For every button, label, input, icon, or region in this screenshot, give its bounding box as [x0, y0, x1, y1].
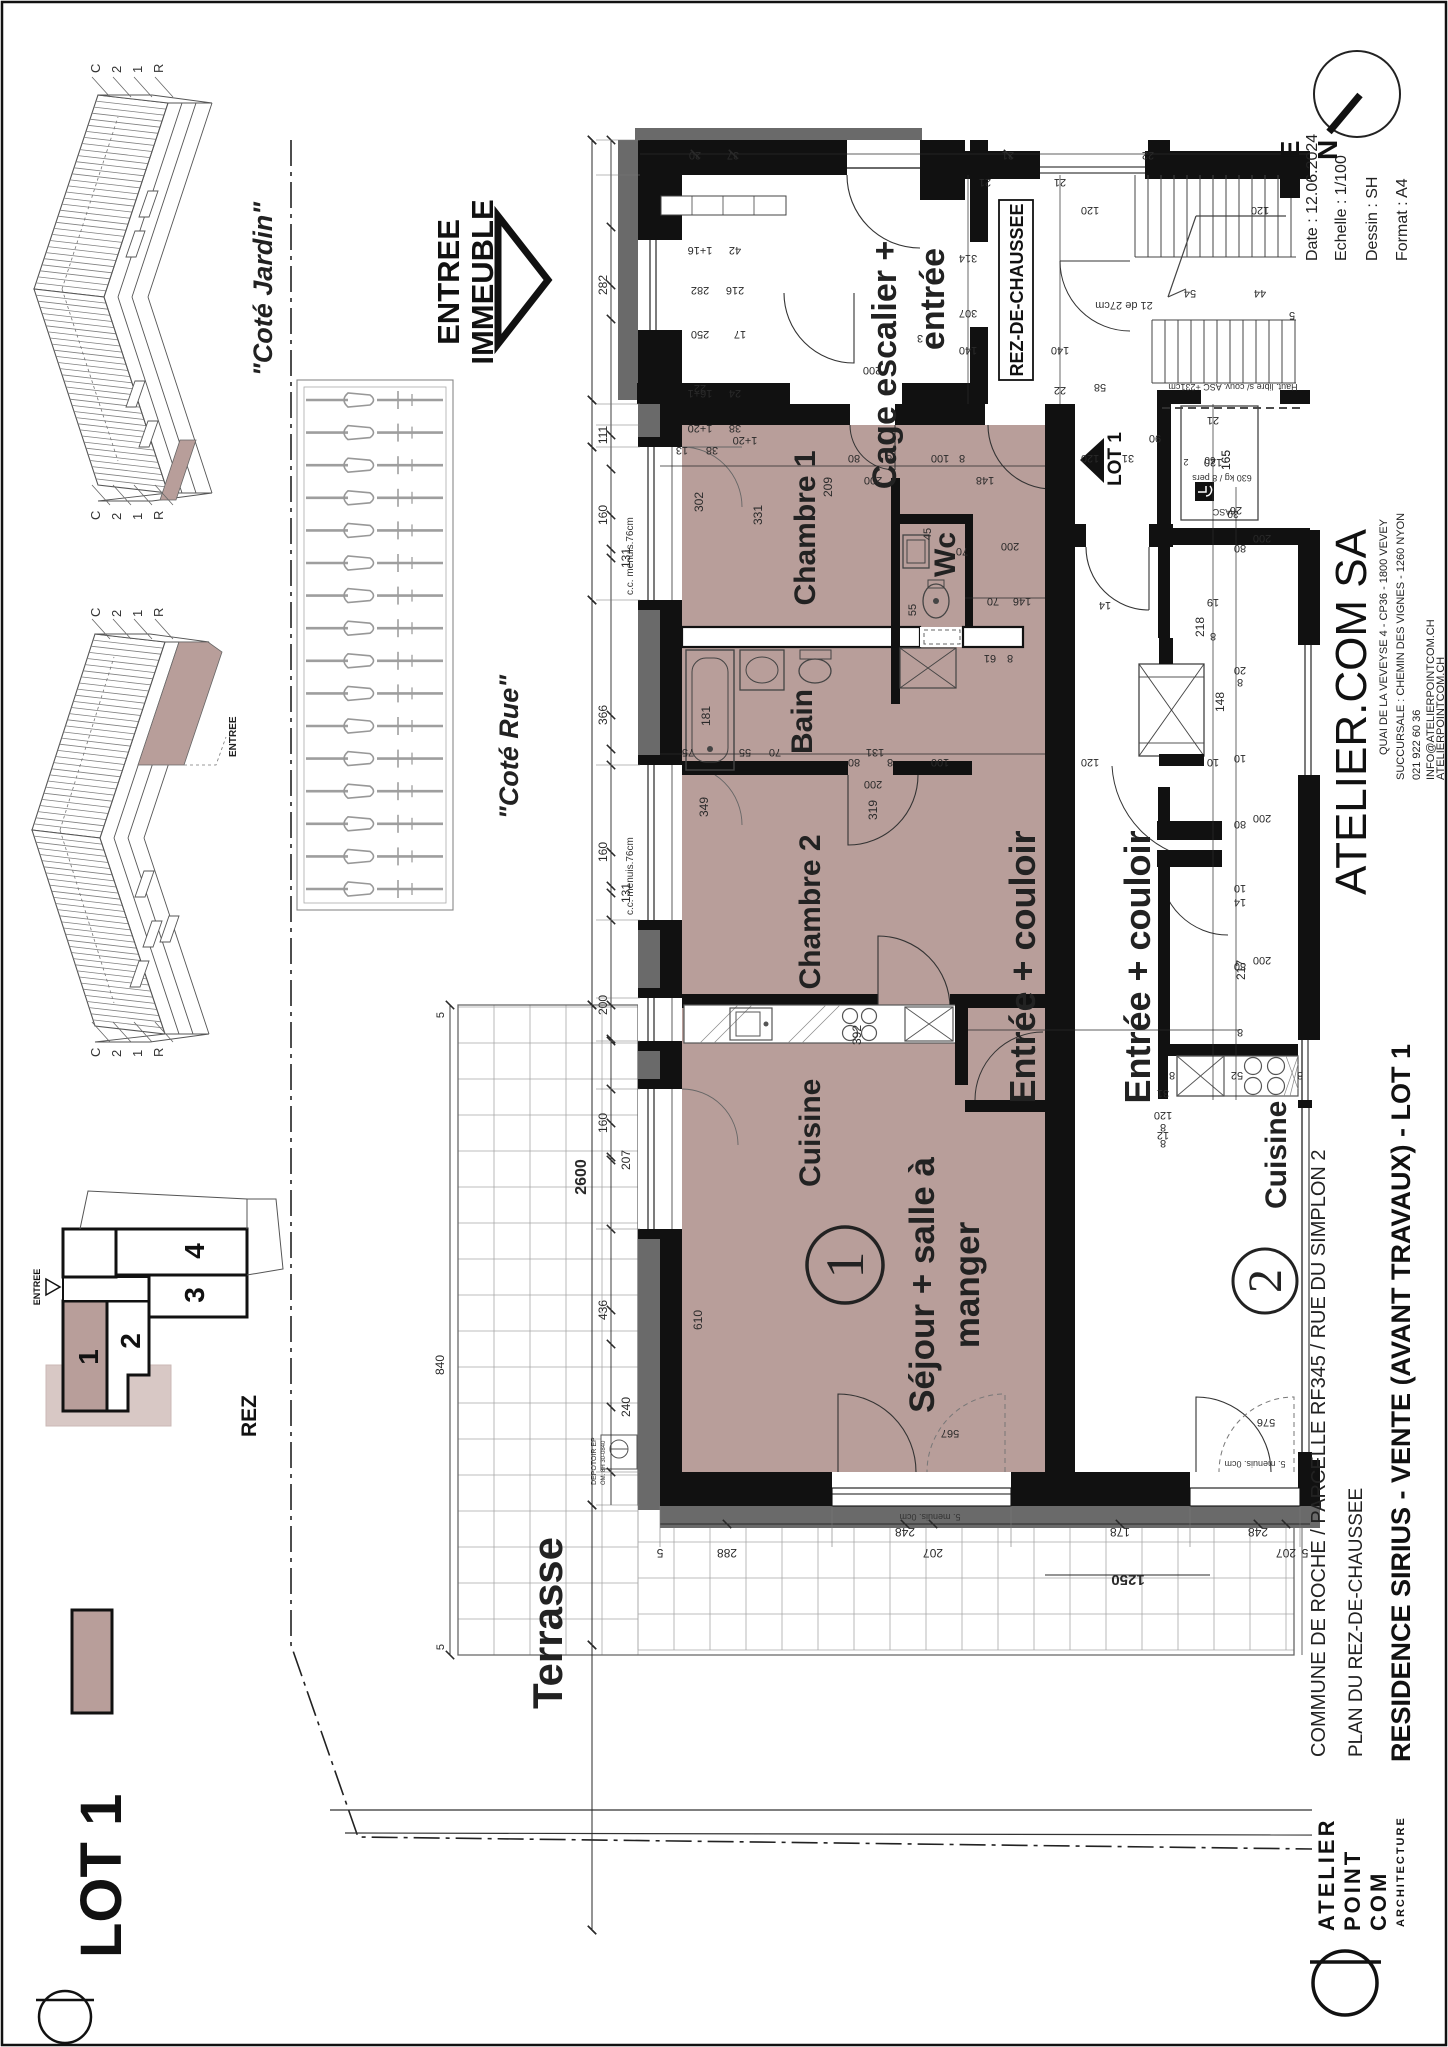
svg-text:2: 2	[109, 66, 124, 73]
svg-text:8: 8	[1297, 1069, 1303, 1081]
svg-text:148: 148	[1213, 692, 1227, 712]
svg-text:45: 45	[922, 528, 934, 540]
svg-text:8: 8	[1237, 1026, 1243, 1038]
svg-text:"Coté Rue": "Coté Rue"	[494, 674, 524, 819]
svg-text:100: 100	[931, 756, 949, 768]
svg-text:120: 120	[1251, 204, 1269, 216]
svg-text:Entrée + couloir: Entrée + couloir	[1117, 830, 1158, 1103]
svg-text:Cuisine: Cuisine	[1260, 1101, 1293, 1209]
svg-text:31: 31	[1122, 452, 1134, 464]
svg-text:21: 21	[1054, 176, 1066, 188]
svg-text:17: 17	[734, 328, 746, 340]
svg-text:140: 140	[959, 344, 977, 356]
svg-text:160: 160	[596, 1113, 610, 1133]
svg-text:R: R	[151, 511, 166, 520]
svg-text:90: 90	[1149, 432, 1161, 444]
svg-text:COM: COM	[1366, 1871, 1391, 1931]
svg-text:REZ-DE-CHAUSSEE: REZ-DE-CHAUSSEE	[1007, 203, 1027, 376]
svg-text:1+16: 1+16	[688, 244, 713, 256]
svg-text:14: 14	[1099, 599, 1111, 611]
svg-text:5: 5	[1289, 309, 1295, 321]
svg-text:200: 200	[864, 474, 882, 486]
svg-text:75: 75	[682, 746, 694, 758]
svg-text:209: 209	[821, 477, 835, 497]
svg-text:120: 120	[1154, 1109, 1172, 1121]
svg-text:567: 567	[941, 1427, 959, 1439]
svg-text:200: 200	[1253, 812, 1271, 824]
svg-text:1: 1	[73, 1349, 104, 1365]
svg-text:248: 248	[895, 1525, 915, 1539]
svg-text:2600: 2600	[573, 1159, 590, 1195]
svg-text:1+20: 1+20	[688, 422, 713, 434]
svg-text:200: 200	[863, 364, 881, 376]
svg-text:N: N	[1312, 140, 1343, 160]
svg-text:55: 55	[739, 746, 751, 758]
svg-text:131: 131	[619, 548, 633, 568]
svg-text:8: 8	[1160, 1121, 1166, 1133]
svg-text:248: 248	[1248, 1525, 1268, 1539]
svg-text:331: 331	[751, 505, 765, 525]
svg-text:2: 2	[1183, 457, 1188, 467]
svg-text:307: 307	[959, 307, 977, 319]
svg-text:QUAI DE LA VEVEYSE 4 - CP36 -: QUAI DE LA VEVEYSE 4 - CP36 - 1800 VEVEY	[1378, 518, 1390, 755]
svg-text:Chambre 1: Chambre 1	[789, 450, 822, 605]
svg-text:8: 8	[1237, 676, 1243, 688]
svg-text:R: R	[151, 64, 166, 73]
svg-text:5: 5	[435, 1012, 447, 1018]
svg-text:3: 3	[917, 332, 923, 344]
svg-text:8: 8	[1169, 1069, 1175, 1081]
svg-text:Cuisine: Cuisine	[794, 1079, 827, 1187]
svg-text:Echelle : 1/100: Echelle : 1/100	[1333, 155, 1350, 261]
svg-text:80: 80	[848, 452, 860, 464]
svg-text:4: 4	[179, 1243, 210, 1259]
svg-text:21: 21	[979, 176, 991, 188]
svg-text:70: 70	[987, 595, 999, 607]
svg-text:200: 200	[1001, 540, 1019, 552]
svg-text:C: C	[88, 1048, 103, 1057]
svg-text:38: 38	[729, 422, 741, 434]
svg-text:OM. 8H 30-0840: OM. 8H 30-0840	[601, 1440, 607, 1485]
svg-text:1+20: 1+20	[733, 434, 758, 446]
svg-text:111: 111	[596, 426, 610, 445]
svg-text:24: 24	[729, 387, 741, 399]
svg-text:16+1: 16+1	[688, 387, 713, 399]
svg-text:314: 314	[959, 252, 977, 264]
svg-text:POINT: POINT	[1340, 1849, 1365, 1931]
svg-text:140: 140	[1051, 344, 1069, 356]
svg-text:120: 120	[1081, 204, 1099, 216]
svg-text:Terrasse: Terrasse	[524, 1537, 571, 1709]
svg-text:8: 8	[959, 452, 965, 464]
svg-text:576: 576	[1257, 1416, 1275, 1428]
svg-text:120: 120	[1081, 756, 1099, 768]
svg-text:ATELIERPOINTCOM.CH: ATELIERPOINTCOM.CH	[1435, 657, 1447, 780]
svg-text:21 de 27cm: 21 de 27cm	[1095, 299, 1152, 311]
svg-text:Format : A4: Format : A4	[1394, 178, 1411, 261]
svg-text:216: 216	[726, 284, 744, 296]
svg-text:R: R	[151, 1048, 166, 1057]
svg-text:288: 288	[717, 1546, 737, 1560]
svg-text:55: 55	[907, 604, 919, 616]
svg-text:70: 70	[956, 545, 968, 557]
svg-text:ENTREE: ENTREE	[431, 219, 466, 345]
svg-text:392: 392	[850, 1025, 864, 1045]
svg-text:1: 1	[130, 1050, 145, 1057]
svg-text:C: C	[88, 511, 103, 520]
svg-text:C: C	[88, 608, 103, 617]
svg-text:54: 54	[1184, 287, 1196, 299]
svg-text:SUCCURSALE : CHEMIN DES VIGNES: SUCCURSALE : CHEMIN DES VIGNES - 1260 NY…	[1395, 513, 1407, 780]
svg-text:1: 1	[130, 610, 145, 617]
svg-text:8: 8	[887, 756, 893, 768]
svg-text:Haut. libre s/ couv. ASC +231c: Haut. libre s/ couv. ASC +231cm	[1168, 382, 1297, 392]
svg-text:80: 80	[848, 756, 860, 768]
svg-text:610: 610	[691, 1310, 705, 1330]
svg-text:22: 22	[1054, 384, 1066, 396]
svg-text:31: 31	[1157, 1087, 1169, 1099]
svg-text:160: 160	[596, 505, 610, 525]
svg-text:131: 131	[866, 746, 884, 758]
svg-text:61: 61	[984, 652, 996, 664]
svg-text:120: 120	[1081, 452, 1099, 464]
svg-text:1250: 1250	[1111, 1571, 1144, 1588]
svg-text:COMMUNE DE ROCHE / PARCELLE RF: COMMUNE DE ROCHE / PARCELLE RF345 / RUE …	[1308, 1149, 1330, 1757]
svg-text:366: 366	[596, 705, 610, 725]
svg-text:38: 38	[706, 444, 718, 456]
svg-text:52: 52	[1231, 1069, 1243, 1081]
svg-text:100: 100	[931, 452, 949, 464]
svg-text:3: 3	[179, 1287, 210, 1303]
svg-text:PLAN DU REZ-DE-CHAUSSEE: PLAN DU REZ-DE-CHAUSSEE	[1346, 1488, 1367, 1757]
svg-text:ATELIER.COM SA: ATELIER.COM SA	[1327, 528, 1376, 895]
svg-text:1: 1	[815, 1252, 875, 1279]
svg-text:5. menuis. 0cm: 5. menuis. 0cm	[1224, 1459, 1285, 1469]
svg-text:RESIDENCE SIRIUS - VENTE (AVAN: RESIDENCE SIRIUS - VENTE (AVANT TRAVAUX)…	[1386, 1044, 1416, 1762]
svg-text:ENTREE: ENTREE	[228, 716, 239, 757]
svg-text:436: 436	[596, 1300, 610, 1320]
svg-text:250: 250	[691, 328, 709, 340]
svg-text:2: 2	[109, 610, 124, 617]
svg-text:Séjour + salle à: Séjour + salle à	[903, 1157, 942, 1413]
svg-text:2: 2	[115, 1333, 146, 1349]
svg-text:ARCHITECTURE: ARCHITECTURE	[1395, 1816, 1407, 1927]
svg-text:5: 5	[656, 1546, 663, 1560]
svg-text:178: 178	[1110, 1525, 1130, 1539]
svg-text:58: 58	[1094, 381, 1106, 393]
svg-text:8: 8	[886, 452, 892, 464]
svg-text:ATELIER: ATELIER	[1314, 1818, 1339, 1931]
svg-text:2: 2	[109, 1050, 124, 1057]
svg-text:302: 302	[692, 492, 706, 512]
svg-text:42: 42	[729, 244, 741, 256]
svg-text:207: 207	[619, 1150, 633, 1170]
svg-text:207: 207	[923, 1546, 943, 1560]
svg-text:E: E	[1275, 141, 1305, 158]
svg-text:70: 70	[769, 746, 781, 758]
svg-text:1: 1	[130, 513, 145, 520]
svg-text:021 922 60 36: 021 922 60 36	[1411, 710, 1423, 780]
svg-text:LOT 1: LOT 1	[69, 1794, 134, 1958]
svg-text:200: 200	[864, 778, 882, 790]
svg-text:282: 282	[691, 284, 709, 296]
svg-text:630 kg / 8 pers: 630 kg / 8 pers	[1192, 473, 1252, 483]
svg-text:REZ: REZ	[238, 1395, 261, 1437]
svg-text:C: C	[88, 64, 103, 73]
svg-text:8: 8	[1007, 652, 1013, 664]
svg-text:349: 349	[697, 797, 711, 817]
svg-text:22: 22	[1142, 149, 1154, 161]
svg-text:282: 282	[596, 275, 610, 295]
svg-text:160: 160	[596, 842, 610, 862]
svg-text:181: 181	[699, 706, 713, 726]
svg-text:Entrée + couloir: Entrée + couloir	[1002, 830, 1043, 1103]
svg-text:146: 146	[1013, 595, 1031, 607]
svg-text:Chambre 2: Chambre 2	[794, 834, 827, 989]
svg-text:"Coté Jardin": "Coté Jardin"	[248, 201, 278, 376]
svg-text:131: 131	[619, 883, 633, 903]
svg-text:manger: manger	[948, 1221, 987, 1348]
svg-text:2: 2	[109, 513, 124, 520]
svg-text:148: 148	[976, 474, 994, 486]
svg-text:2: 2	[1239, 1269, 1292, 1293]
svg-text:319: 319	[866, 800, 880, 820]
svg-text:240: 240	[619, 1397, 633, 1417]
svg-text:Dessin : SH: Dessin : SH	[1364, 177, 1381, 261]
svg-text:200: 200	[1253, 532, 1271, 544]
svg-text:207: 207	[1276, 1546, 1296, 1560]
svg-text:1: 1	[130, 66, 145, 73]
svg-text:840: 840	[433, 1355, 447, 1375]
svg-text:Bain: Bain	[786, 689, 819, 754]
svg-text:ENTREE: ENTREE	[32, 1269, 42, 1306]
svg-text:200: 200	[1253, 954, 1271, 966]
svg-text:R: R	[151, 608, 166, 617]
svg-text:218: 218	[1193, 617, 1207, 637]
svg-text:5: 5	[435, 1644, 447, 1650]
svg-text:44: 44	[1254, 287, 1266, 299]
svg-text:13: 13	[676, 444, 688, 456]
